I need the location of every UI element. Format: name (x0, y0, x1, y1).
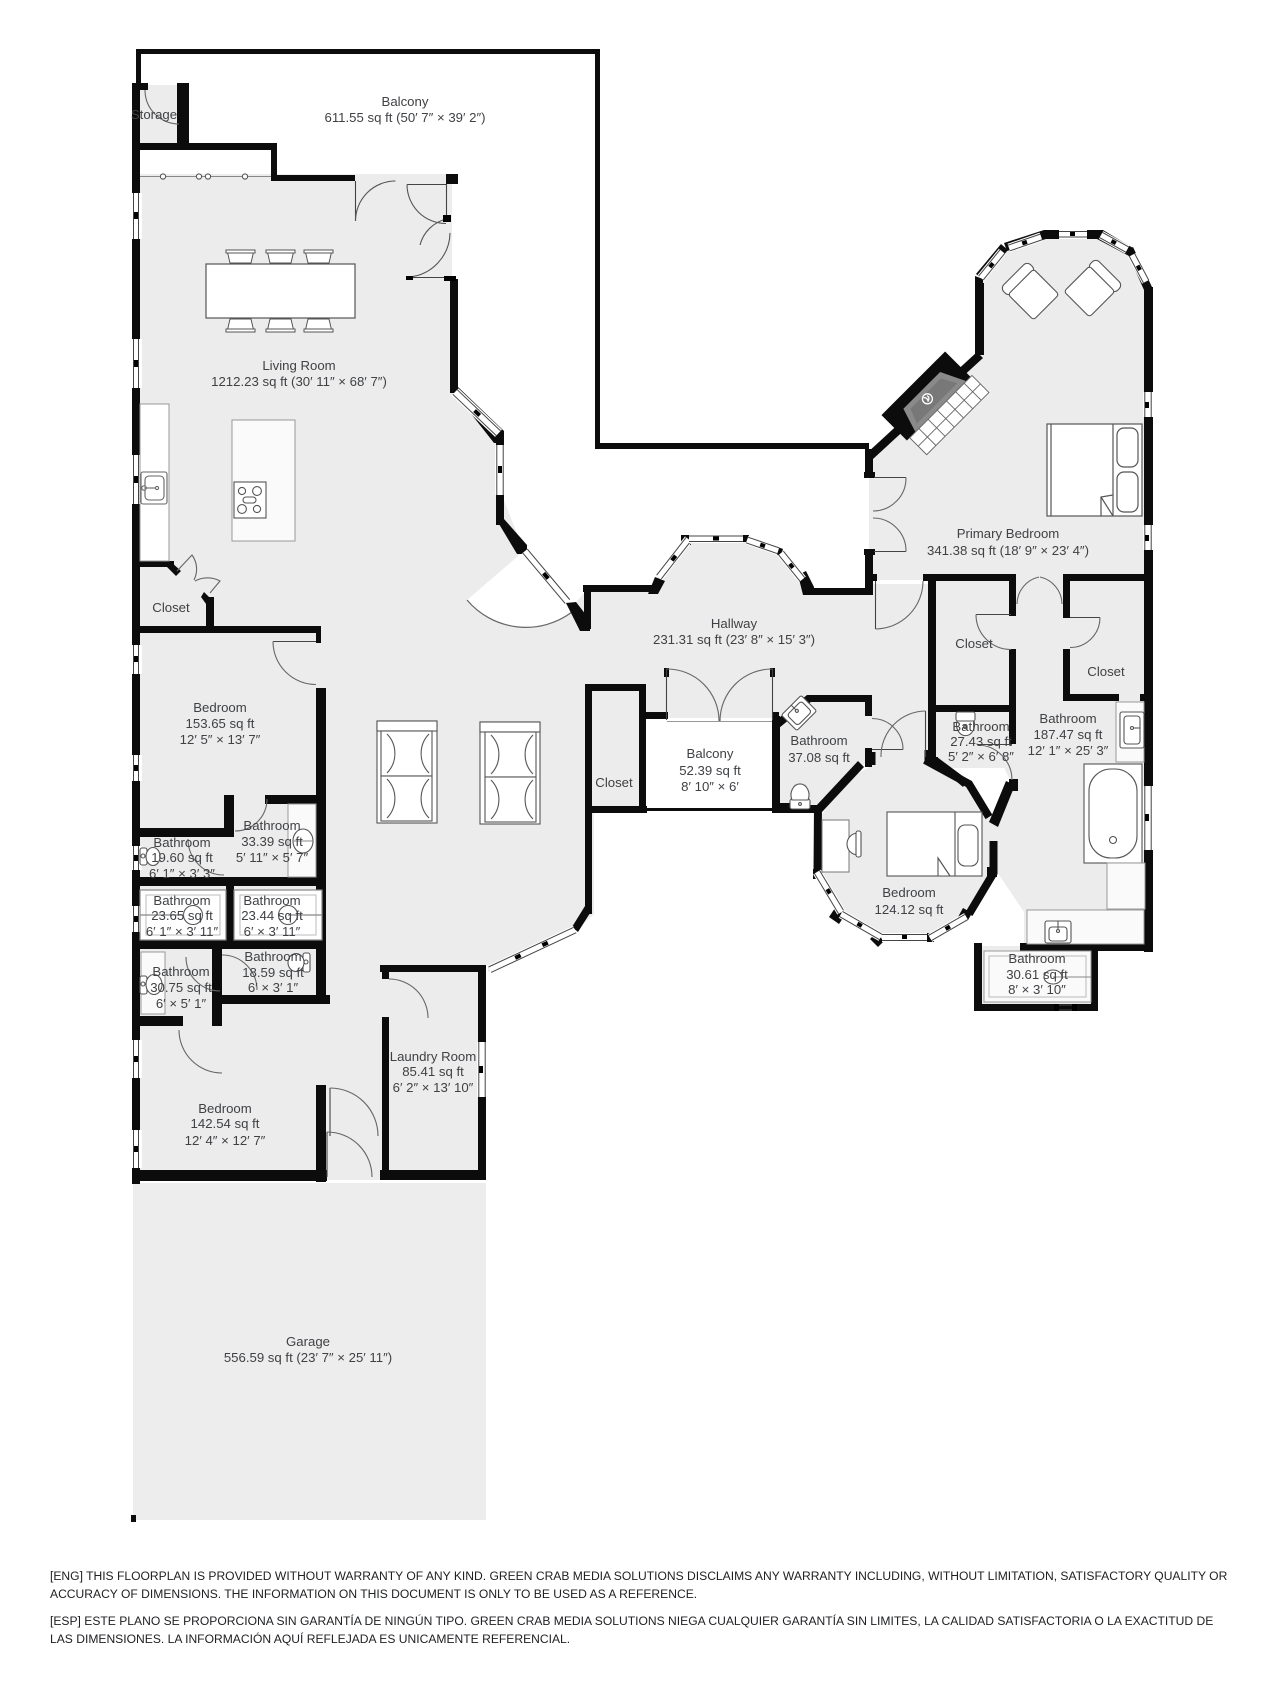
svg-text:Bathroom: Bathroom (153, 835, 210, 850)
svg-text:6′ 2″ × 13′ 10″: 6′ 2″ × 13′ 10″ (393, 1080, 474, 1095)
svg-text:Balcony: Balcony (687, 746, 734, 761)
svg-text:Primary Bedroom: Primary Bedroom (957, 526, 1060, 541)
svg-text:LAS DIMENSIONES. LA INFORMACIÓ: LAS DIMENSIONES. LA INFORMACIÓN AQUÍ REF… (50, 1631, 570, 1646)
svg-text:Closet: Closet (1087, 664, 1125, 679)
svg-text:124.12 sq ft: 124.12 sq ft (875, 902, 944, 917)
svg-text:6′ × 3′ 1″: 6′ × 3′ 1″ (248, 980, 299, 995)
svg-text:12′ 4″ × 12′ 7″: 12′ 4″ × 12′ 7″ (185, 1133, 266, 1148)
svg-text:[ESP] ESTE PLANO SE PROPORCION: [ESP] ESTE PLANO SE PROPORCIONA SIN GARA… (50, 1613, 1213, 1628)
svg-text:Bathroom: Bathroom (153, 893, 210, 908)
svg-text:Bathroom: Bathroom (243, 893, 300, 908)
svg-text:6′ × 3′ 11″: 6′ × 3′ 11″ (244, 924, 301, 939)
svg-text:ACCURACY OF DIMENSIONS. THE IN: ACCURACY OF DIMENSIONS. THE INFORMATION … (50, 1587, 697, 1601)
svg-text:Bathroom: Bathroom (152, 964, 209, 979)
svg-text:Closet: Closet (595, 775, 633, 790)
svg-text:8′ 10″ × 6′: 8′ 10″ × 6′ (681, 779, 739, 794)
svg-text:Bathroom: Bathroom (1039, 711, 1096, 726)
svg-text:8′ × 3′ 10″: 8′ × 3′ 10″ (1008, 982, 1066, 997)
svg-text:556.59 sq ft (23′ 7″ × 25′ 11″: 556.59 sq ft (23′ 7″ × 25′ 11″) (224, 1350, 392, 1365)
svg-text:85.41 sq ft: 85.41 sq ft (402, 1064, 464, 1079)
svg-text:Bathroom: Bathroom (243, 818, 300, 833)
svg-text:Bedroom: Bedroom (882, 885, 936, 900)
svg-text:52.39 sq ft: 52.39 sq ft (679, 763, 741, 778)
svg-text:187.47 sq ft: 187.47 sq ft (1034, 727, 1103, 742)
svg-text:30.75 sq ft: 30.75 sq ft (150, 980, 212, 995)
svg-text:19.60 sq ft: 19.60 sq ft (151, 850, 213, 865)
svg-text:37.08 sq ft: 37.08 sq ft (788, 750, 850, 765)
svg-text:Garage: Garage (286, 1334, 330, 1349)
svg-text:1212.23 sq ft (30′ 11″ × 68′ 7: 1212.23 sq ft (30′ 11″ × 68′ 7″) (211, 374, 387, 389)
svg-text:142.54 sq ft: 142.54 sq ft (191, 1116, 260, 1131)
svg-text:30.61 sq ft: 30.61 sq ft (1006, 967, 1068, 982)
svg-text:Balcony: Balcony (382, 94, 429, 109)
svg-text:231.31 sq ft (23′ 8″ × 15′ 3″): 231.31 sq ft (23′ 8″ × 15′ 3″) (653, 632, 815, 647)
svg-text:23.65 sq ft: 23.65 sq ft (151, 908, 213, 923)
svg-text:6′ 1″ × 3′ 11″: 6′ 1″ × 3′ 11″ (146, 924, 219, 939)
svg-text:18.59 sq ft: 18.59 sq ft (242, 965, 304, 980)
svg-text:6′ 1″ × 3′ 3″: 6′ 1″ × 3′ 3″ (149, 866, 215, 881)
svg-text:23.44 sq ft: 23.44 sq ft (241, 908, 303, 923)
svg-text:Bathroom: Bathroom (244, 949, 301, 964)
svg-text:12′ 5″ × 13′ 7″: 12′ 5″ × 13′ 7″ (180, 732, 261, 747)
svg-text:6′ × 5′ 1″: 6′ × 5′ 1″ (156, 996, 207, 1011)
svg-text:Laundry Room: Laundry Room (390, 1049, 477, 1064)
svg-text:Bedroom: Bedroom (198, 1101, 252, 1116)
svg-text:Closet: Closet (955, 636, 993, 651)
svg-text:Bathroom: Bathroom (952, 719, 1009, 734)
svg-text:Bathroom: Bathroom (790, 733, 847, 748)
svg-text:Closet: Closet (152, 600, 190, 615)
svg-text:Bedroom: Bedroom (193, 700, 247, 715)
svg-text:5′ 2″ × 6′ 8″: 5′ 2″ × 6′ 8″ (948, 749, 1014, 764)
svg-text:341.38 sq ft (18′ 9″ × 23′ 4″): 341.38 sq ft (18′ 9″ × 23′ 4″) (927, 543, 1089, 558)
svg-text:Bathroom: Bathroom (1008, 951, 1065, 966)
svg-text:Hallway: Hallway (711, 616, 758, 631)
svg-text:33.39 sq ft: 33.39 sq ft (241, 834, 303, 849)
svg-text:611.55 sq ft (50′ 7″ × 39′ 2″): 611.55 sq ft (50′ 7″ × 39′ 2″) (324, 110, 485, 125)
svg-text:153.65 sq ft: 153.65 sq ft (186, 716, 255, 731)
svg-text:[ENG] THIS FLOORPLAN IS PROVID: [ENG] THIS FLOORPLAN IS PROVIDED WITHOUT… (50, 1569, 1228, 1583)
svg-text:Living Room: Living Room (262, 358, 335, 373)
svg-text:27.43 sq ft: 27.43 sq ft (950, 734, 1012, 749)
svg-text:12′ 1″ × 25′ 3″: 12′ 1″ × 25′ 3″ (1028, 743, 1109, 758)
svg-text:5′ 11″ × 5′ 7″: 5′ 11″ × 5′ 7″ (236, 850, 309, 865)
svg-text:Storage: Storage (131, 107, 177, 122)
